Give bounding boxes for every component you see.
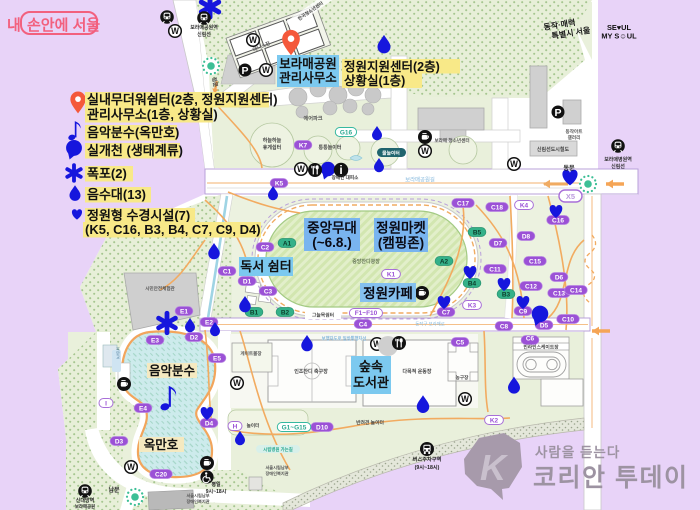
svg-text:C1: C1 — [223, 269, 232, 276]
svg-text:독서 쉼터: 독서 쉼터 — [240, 259, 291, 274]
svg-text:상황실(1층): 상황실(1층) — [344, 73, 405, 88]
svg-text:정원형 수경시설(7): 정원형 수경시설(7) — [87, 208, 190, 223]
svg-text:신대방역: 신대방역 — [76, 497, 95, 504]
svg-text:서울시립남부: 서울시립남부 — [265, 464, 288, 471]
svg-text:C11: C11 — [489, 267, 501, 274]
svg-text:C3: C3 — [264, 289, 273, 296]
svg-text:B4: B4 — [468, 281, 477, 288]
svg-text:D2: D2 — [190, 335, 199, 342]
svg-text:E2: E2 — [205, 320, 213, 327]
svg-text:C15: C15 — [529, 259, 541, 266]
svg-text:그늘목쉼터: 그늘목쉼터 — [312, 312, 334, 319]
svg-text:K2: K2 — [490, 418, 499, 425]
svg-text:물놀이터: 물놀이터 — [382, 150, 400, 157]
svg-text:정원카페: 정원카페 — [363, 285, 413, 301]
svg-text:B1: B1 — [250, 310, 259, 317]
svg-text:C17: C17 — [457, 201, 469, 208]
svg-text:C12: C12 — [525, 284, 537, 291]
svg-text:음악분수: 음악분수 — [149, 363, 196, 378]
svg-text:보라매 청소년센터: 보라매 청소년센터 — [434, 137, 469, 144]
svg-text:K7: K7 — [299, 143, 308, 150]
svg-text:D7: D7 — [494, 241, 503, 248]
svg-text:관리사무소(1층, 상황실): 관리사무소(1층, 상황실) — [87, 107, 218, 122]
svg-text:C20: C20 — [155, 472, 167, 479]
svg-text:I: I — [105, 401, 107, 408]
svg-text:정원지원센터(2층): 정원지원센터(2층) — [344, 59, 440, 74]
svg-text:남문: 남문 — [108, 486, 120, 494]
svg-text:보라매공원: 보라매공원 — [75, 503, 95, 510]
svg-text:C2: C2 — [261, 245, 270, 252]
svg-text:C8: C8 — [500, 324, 509, 331]
svg-text:다목적 운동장: 다목적 운동장 — [403, 368, 432, 375]
svg-text:인조잔디 축구장: 인조잔디 축구장 — [294, 368, 328, 375]
svg-text:G16: G16 — [340, 129, 353, 136]
svg-text:동작구 보라매로: 동작구 보라매로 — [415, 321, 445, 328]
svg-text:에어파크: 에어파크 — [303, 114, 322, 122]
svg-text:C4: C4 — [359, 322, 368, 329]
svg-text:평일: 평일 — [211, 481, 221, 488]
svg-text:관리사무소: 관리사무소 — [279, 70, 337, 85]
svg-text:폭포(2): 폭포(2) — [87, 166, 127, 181]
svg-text:장애인 대피소: 장애인 대피소 — [332, 174, 359, 181]
svg-text:중앙잔디광장: 중앙잔디광장 — [352, 258, 380, 265]
svg-text:C6: C6 — [526, 336, 535, 343]
svg-text:B5: B5 — [473, 230, 482, 237]
svg-text:K5: K5 — [275, 181, 284, 188]
svg-text:E5: E5 — [213, 356, 221, 363]
svg-text:사람을 듣는다: 사람을 듣는다 — [535, 445, 620, 460]
svg-text:휴게쉼터: 휴게쉼터 — [263, 144, 282, 151]
svg-text:보라매병원역: 보라매병원역 — [604, 156, 632, 163]
svg-text:D3: D3 — [115, 439, 124, 446]
svg-text:장애인복지관: 장애인복지관 — [186, 498, 209, 505]
svg-text:동문: 동문 — [563, 164, 575, 172]
svg-text:시민안전체험관: 시민안전체험관 — [145, 285, 175, 292]
svg-text:시립병원 가는길: 시립병원 가는길 — [263, 446, 293, 453]
svg-text:(~6.8.): (~6.8.) — [312, 235, 351, 250]
svg-text:보라매공원길: 보라매공원길 — [405, 176, 435, 184]
svg-text:하늘하늘: 하늘하늘 — [263, 137, 282, 144]
svg-text:K4: K4 — [520, 203, 529, 210]
svg-text:B3: B3 — [502, 292, 511, 299]
svg-text:F1~F10: F1~F10 — [355, 310, 378, 317]
svg-text:동작아트: 동작아트 — [566, 128, 584, 135]
svg-text:농구장: 농구장 — [456, 374, 469, 381]
svg-text:(K5, C16, B3, B4, C7, C9, D4): (K5, C16, B3, B4, C7, C9, D4) — [85, 222, 261, 237]
svg-text:G1~G15: G1~G15 — [282, 424, 307, 431]
svg-text:정원마켓: 정원마켓 — [376, 220, 426, 236]
svg-text:옥만호: 옥만호 — [144, 437, 179, 452]
svg-text:K3: K3 — [468, 303, 477, 310]
svg-text:C14: C14 — [570, 288, 582, 295]
svg-text:놀이터: 놀이터 — [247, 422, 260, 429]
svg-text:MY S☺UL: MY S☺UL — [601, 32, 637, 41]
svg-text:반려견 놀이터: 반려견 놀이터 — [356, 419, 384, 426]
svg-text:통통놀이터: 통통놀이터 — [318, 144, 341, 151]
svg-text:신림선: 신림선 — [197, 31, 211, 38]
svg-text:코리안 투데이: 코리안 투데이 — [533, 464, 688, 492]
svg-text:숲속: 숲속 — [359, 359, 383, 374]
svg-text:(9시~18시): (9시~18시) — [415, 464, 440, 471]
svg-text:D1: D1 — [243, 279, 252, 286]
svg-text:C16: C16 — [552, 218, 564, 225]
svg-text:E4: E4 — [139, 406, 147, 413]
svg-text:D5: D5 — [540, 323, 549, 330]
svg-text:음악분수(옥만호): 음악분수(옥만호) — [87, 125, 179, 140]
svg-text:중앙무대: 중앙무대 — [307, 221, 357, 236]
svg-text:A2: A2 — [440, 259, 449, 266]
svg-text:C5: C5 — [456, 340, 465, 347]
svg-text:음수대(13): 음수대(13) — [87, 187, 146, 202]
svg-text:K: K — [480, 447, 509, 488]
svg-text:인라인스케이트장: 인라인스케이트장 — [523, 344, 559, 351]
svg-text:보라매공원: 보라매공원 — [279, 56, 337, 71]
svg-text:게이트볼장: 게이트볼장 — [240, 350, 262, 357]
svg-text:옥만교: 옥만교 — [116, 347, 121, 359]
svg-text:C7: C7 — [442, 310, 451, 317]
svg-text:E1: E1 — [180, 309, 188, 316]
svg-text:A1: A1 — [283, 241, 292, 248]
svg-text:손안에 서울: 손안에 서울 — [27, 16, 100, 34]
svg-text:C13: C13 — [553, 291, 565, 298]
svg-text:(캠핑존): (캠핑존) — [378, 235, 424, 251]
svg-text:갤러리: 갤러리 — [568, 134, 581, 141]
svg-text:9시~18시: 9시~18시 — [206, 489, 227, 495]
svg-text:보라매공원역: 보라매공원역 — [190, 24, 218, 31]
svg-text:E3: E3 — [151, 338, 159, 345]
svg-text:H: H — [233, 424, 238, 431]
svg-text:내: 내 — [7, 17, 21, 34]
svg-text:D4: D4 — [205, 421, 214, 428]
svg-text:버스주차구역: 버스주차구역 — [413, 455, 442, 463]
svg-text:장애인복지관: 장애인복지관 — [265, 470, 288, 477]
svg-text:도서관: 도서관 — [353, 375, 389, 390]
svg-text:C9: C9 — [519, 309, 528, 316]
svg-text:B2: B2 — [281, 310, 290, 317]
svg-text:X5: X5 — [566, 192, 575, 201]
svg-text:D10: D10 — [316, 425, 328, 432]
svg-text:실개천 (생태계류): 실개천 (생태계류) — [87, 143, 183, 158]
svg-text:D6: D6 — [555, 275, 564, 282]
svg-text:실내무더워쉼터(2층, 정원지원센터): 실내무더워쉼터(2층, 정원지원센터) — [87, 92, 278, 107]
svg-text:C18: C18 — [491, 205, 503, 212]
svg-text:보행자도로 일방통행차선: 보행자도로 일방통행차선 — [322, 335, 367, 342]
svg-text:신림선도시철도: 신림선도시철도 — [537, 146, 570, 153]
svg-text:K1: K1 — [387, 272, 396, 279]
svg-text:신림선: 신림선 — [611, 163, 625, 170]
svg-text:D8: D8 — [522, 234, 531, 241]
svg-text:C10: C10 — [562, 317, 574, 324]
